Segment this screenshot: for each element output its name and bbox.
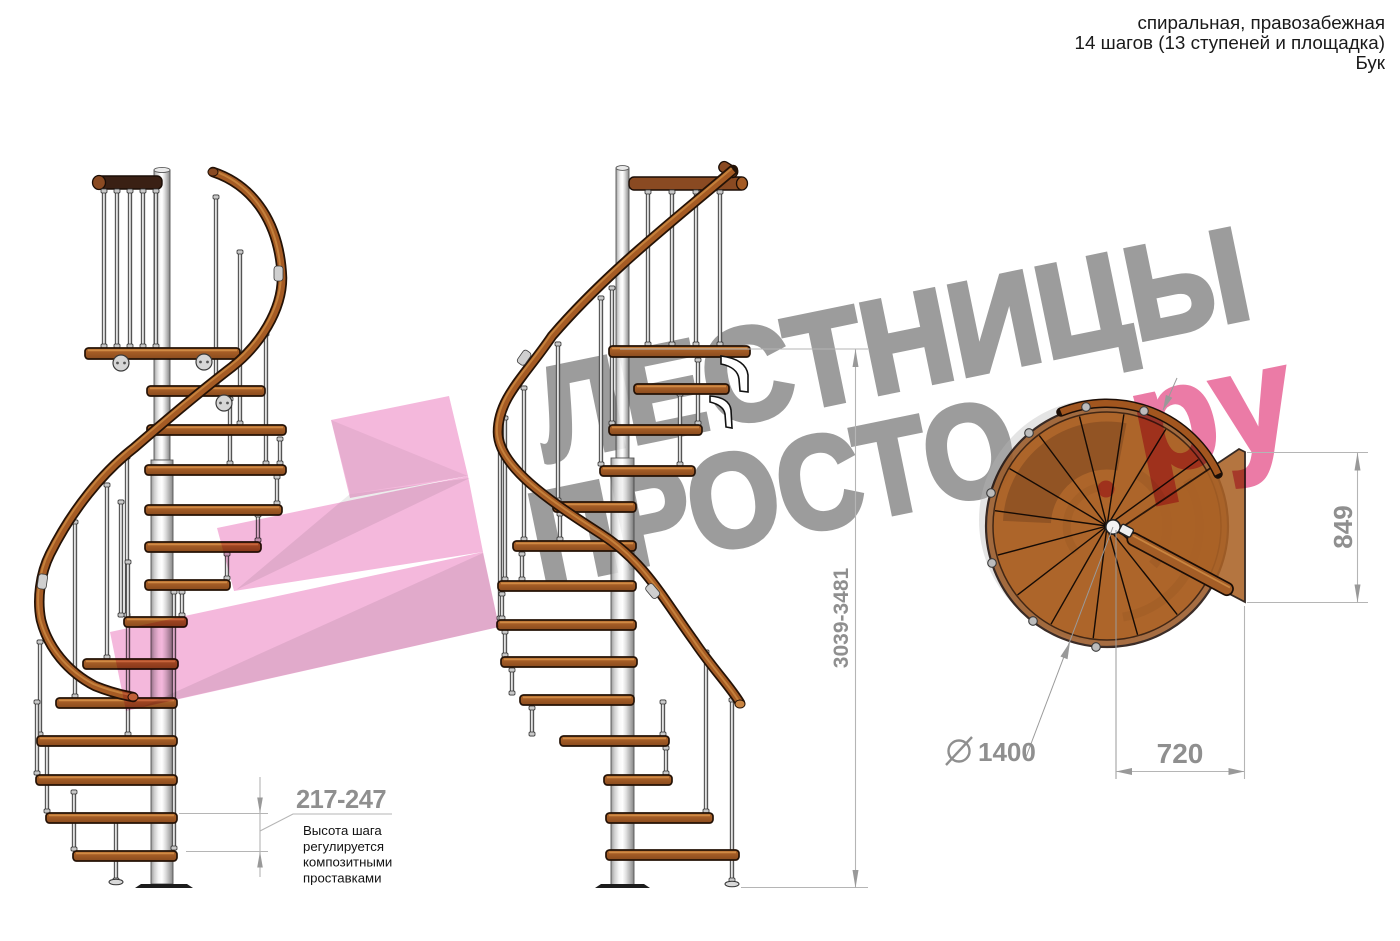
svg-text:1400: 1400 — [978, 737, 1036, 767]
svg-text:720: 720 — [1157, 738, 1204, 769]
svg-text:Бук: Бук — [1355, 52, 1385, 73]
svg-text:849: 849 — [1328, 505, 1358, 548]
svg-text:3039-3481: 3039-3481 — [830, 567, 853, 668]
svg-text:спиральная, правозабежная: спиральная, правозабежная — [1137, 12, 1385, 33]
svg-text:14 шагов (13 ступеней и площад: 14 шагов (13 ступеней и площадка) — [1075, 32, 1385, 53]
svg-text:Высота шагарегулируетсякомпози: Высота шагарегулируетсякомпозитнымипрост… — [303, 823, 392, 885]
svg-text:217-247: 217-247 — [296, 786, 386, 814]
